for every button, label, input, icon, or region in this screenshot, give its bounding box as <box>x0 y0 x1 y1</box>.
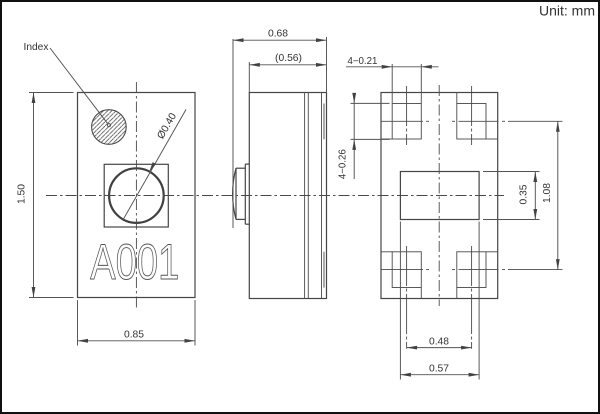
svg-text:Index: Index <box>24 42 49 53</box>
svg-text:4−0.21: 4−0.21 <box>348 56 378 67</box>
svg-text:0.85: 0.85 <box>124 329 144 340</box>
svg-text:(0.56): (0.56) <box>275 53 302 64</box>
svg-text:A001: A001 <box>90 233 179 290</box>
svg-text:0.68: 0.68 <box>268 29 288 40</box>
svg-text:1.50: 1.50 <box>17 184 28 204</box>
svg-text:Unit: mm: Unit: mm <box>539 3 595 19</box>
svg-text:0.57: 0.57 <box>429 364 449 375</box>
svg-text:4−0.26: 4−0.26 <box>337 149 348 179</box>
svg-text:0.35: 0.35 <box>519 184 530 204</box>
svg-text:1.08: 1.08 <box>542 183 553 203</box>
svg-text:0.48: 0.48 <box>429 336 449 347</box>
